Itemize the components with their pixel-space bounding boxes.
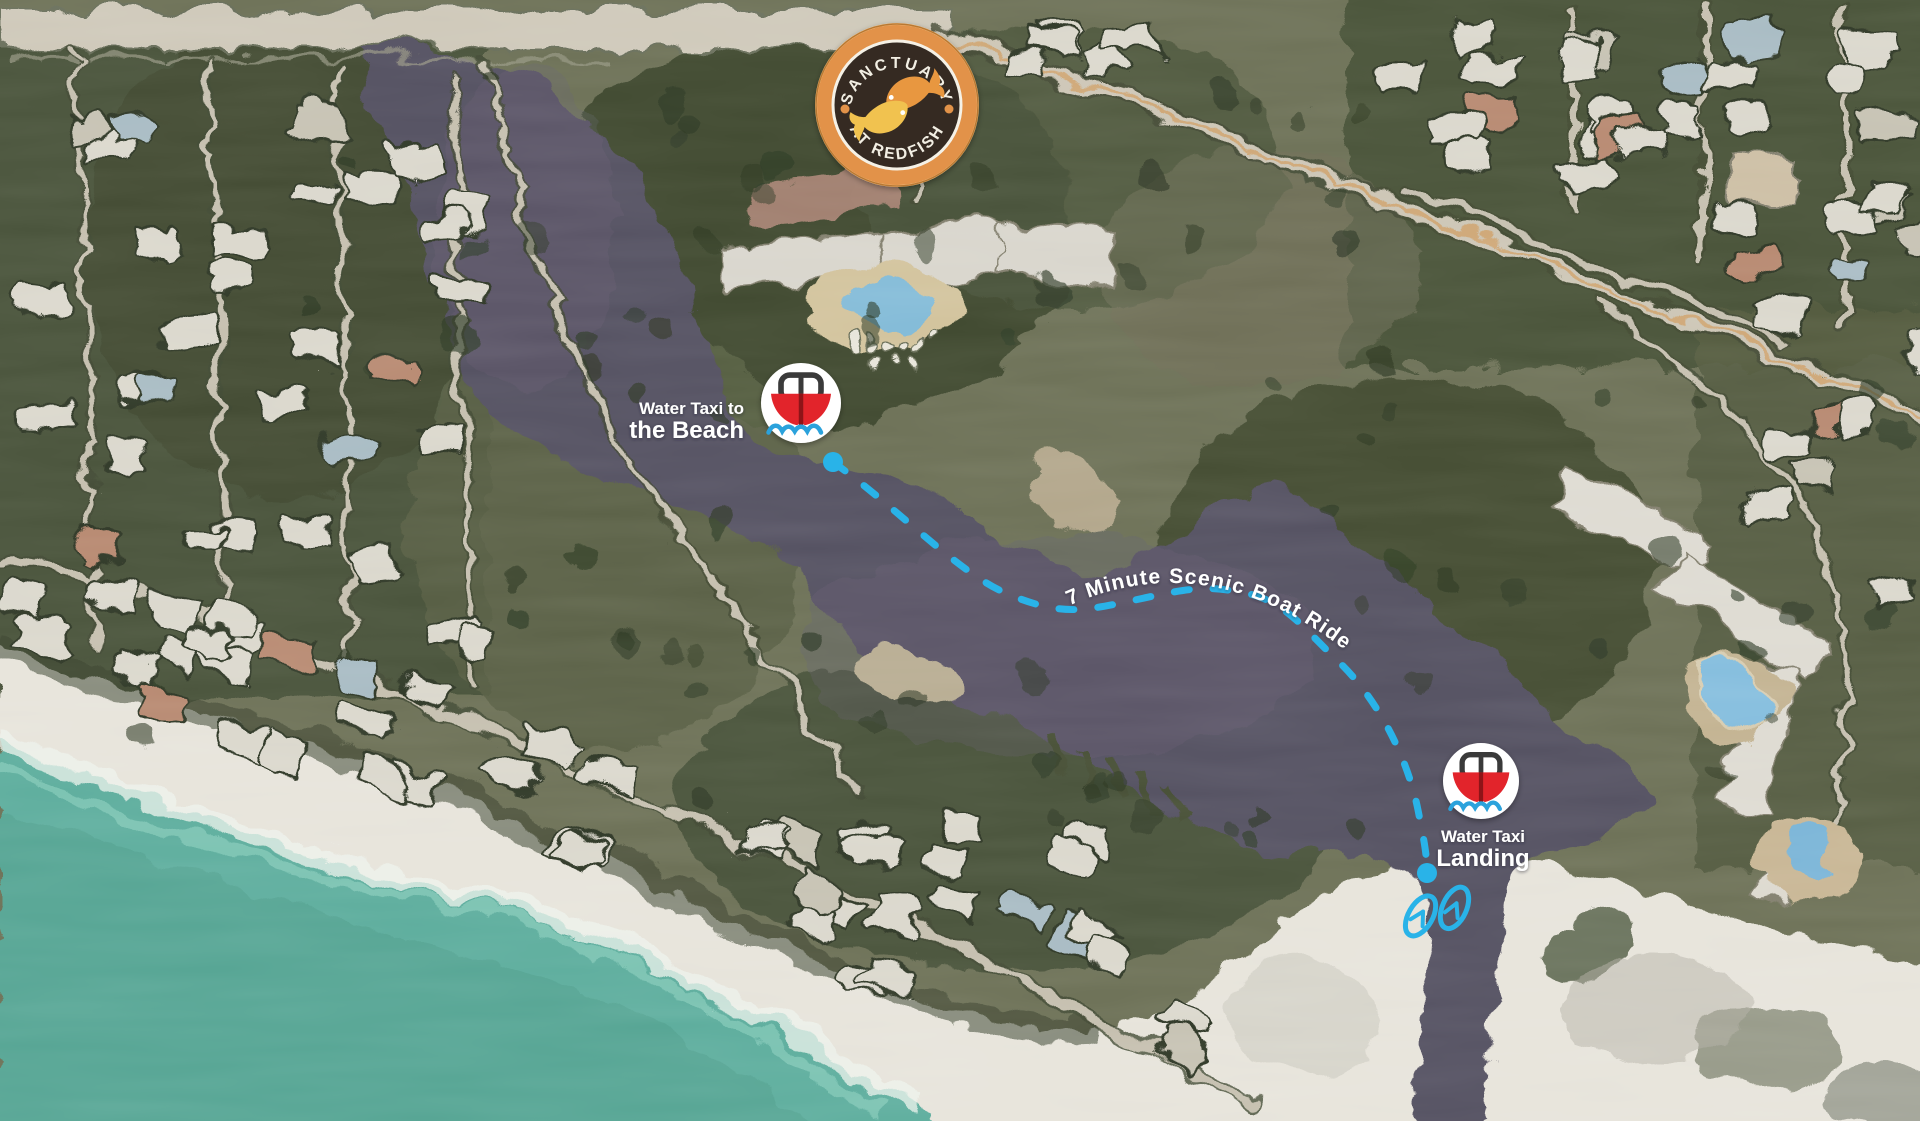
route-end-dot (1417, 863, 1437, 883)
landing-marker-label-line2: Landing (1436, 845, 1529, 872)
beach-marker-label-line2: the Beach (629, 417, 744, 444)
route-start-dot (823, 452, 843, 472)
resort-logo: SANCTUARY AT REDFISH (816, 24, 978, 186)
resort-map: 7 Minute Scenic Boat Ride Water Taxi to … (0, 0, 1920, 1121)
beach-marker-label-line1: Water Taxi to (639, 399, 744, 418)
landing-marker-label-line1: Water Taxi (1441, 827, 1525, 846)
